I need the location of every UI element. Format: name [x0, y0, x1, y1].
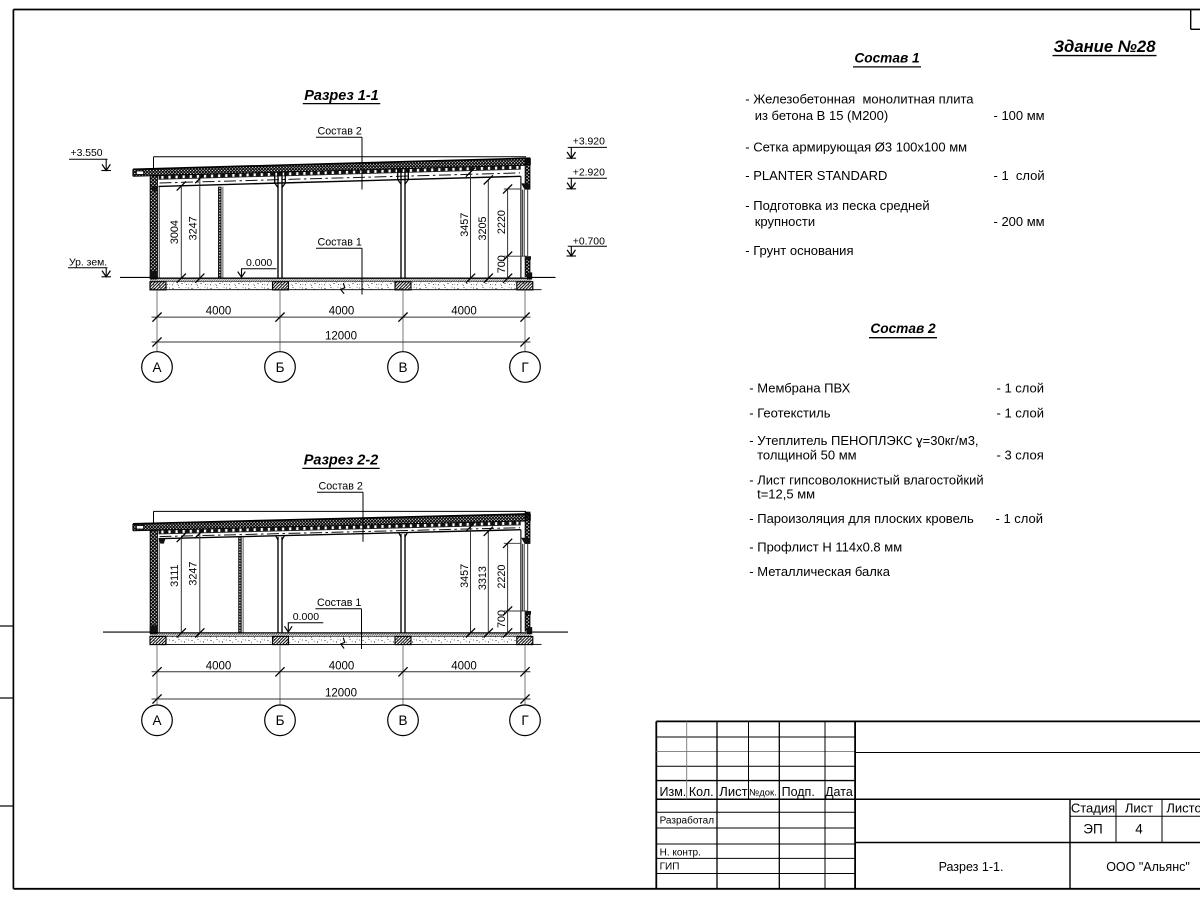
svg-text:2220: 2220	[496, 210, 508, 234]
svg-text:4000: 4000	[329, 660, 355, 672]
svg-text:№док.: №док.	[749, 787, 777, 798]
svg-text:Разработал: Разработал	[660, 815, 715, 827]
svg-text:+3.550: +3.550	[71, 148, 103, 159]
svg-text:Разрез 2-2: Разрез 2-2	[304, 453, 378, 469]
svg-text:- Сетка армирующая Ø3 100х100: - Сетка армирующая Ø3 100х100 мм	[745, 139, 967, 154]
svg-text:3247: 3247	[188, 216, 200, 240]
svg-text:Стадия: Стадия	[1071, 800, 1115, 815]
svg-text:Г: Г	[521, 360, 529, 375]
svg-text:3457: 3457	[459, 564, 471, 588]
svg-text:из бетона В 15 (М200): из бетона В 15 (М200)	[755, 108, 889, 123]
svg-text:12000: 12000	[325, 331, 357, 343]
svg-text:+0.700: +0.700	[573, 236, 605, 247]
svg-text:ЭП: ЭП	[1083, 822, 1102, 837]
svg-text:+2.920: +2.920	[573, 167, 605, 178]
svg-text:Лист: Лист	[1125, 800, 1153, 815]
svg-text:Здание №28: Здание №28	[1054, 37, 1157, 56]
svg-text:Состав 2: Состав 2	[319, 481, 363, 493]
svg-text:Г: Г	[521, 713, 529, 728]
svg-text:Состав 1: Состав 1	[854, 50, 919, 65]
svg-text:Дата: Дата	[825, 785, 853, 799]
svg-text:Изм.: Изм.	[660, 785, 687, 799]
svg-text:- Подготовка из песка средней: - Подготовка из песка средней	[745, 198, 929, 213]
svg-text:Ур. зем.: Ур. зем.	[69, 257, 107, 268]
svg-text:Разрез 1-1.: Разрез 1-1.	[939, 860, 1004, 874]
svg-text:4000: 4000	[451, 306, 477, 318]
svg-text:- Утеплитель ПЕНОПЛЭКС ɣ=30кг/: - Утеплитель ПЕНОПЛЭКС ɣ=30кг/м3,	[749, 433, 978, 448]
svg-text:ООО "Альянс": ООО "Альянс"	[1106, 860, 1190, 874]
svg-text:Лист: Лист	[719, 784, 747, 799]
svg-text:- Мембрана ПВХ: - Мембрана ПВХ	[749, 381, 850, 396]
svg-text:4000: 4000	[206, 660, 232, 672]
svg-text:- Грунт основания: - Грунт основания	[745, 243, 853, 258]
svg-text:4000: 4000	[451, 660, 477, 672]
svg-text:В: В	[398, 360, 407, 375]
svg-text:- 1 слой: - 1 слой	[996, 511, 1044, 526]
svg-text:3247: 3247	[188, 562, 200, 586]
svg-text:- 1 слой: - 1 слой	[997, 381, 1045, 396]
svg-text:Кол.: Кол.	[689, 785, 714, 799]
svg-text:Б: Б	[276, 713, 285, 728]
svg-text:- 1 слой: - 1 слой	[997, 406, 1045, 421]
svg-text:3004: 3004	[169, 220, 181, 244]
svg-text:- 100 мм: - 100 мм	[994, 108, 1045, 123]
svg-text:- Геотекстиль: - Геотекстиль	[749, 406, 830, 421]
svg-text:В: В	[398, 713, 407, 728]
svg-text:Подп.: Подп.	[782, 785, 815, 799]
svg-text:- Металлическая балка: - Металлическая балка	[749, 564, 890, 579]
svg-text:3205: 3205	[477, 216, 489, 240]
svg-text:толщиной 50 мм: толщиной 50 мм	[757, 448, 857, 463]
svg-text:А: А	[152, 360, 161, 375]
svg-text:Н. контр.: Н. контр.	[660, 847, 701, 858]
svg-text:- Железобетонная монолитная п: - Железобетонная монолитная плита	[745, 91, 974, 106]
svg-text:t=12,5 мм: t=12,5 мм	[757, 486, 815, 501]
svg-text:4000: 4000	[206, 306, 232, 318]
svg-text:ГИП: ГИП	[660, 862, 680, 873]
svg-text:Состав 1: Состав 1	[318, 237, 362, 249]
svg-text:3111: 3111	[169, 564, 181, 586]
svg-text:Состав 2: Состав 2	[318, 125, 362, 137]
svg-text:Состав 1: Состав 1	[317, 597, 361, 609]
svg-text:Разрез 1-1: Разрез 1-1	[304, 88, 378, 104]
svg-text:12000: 12000	[325, 688, 357, 700]
svg-text:Б: Б	[276, 360, 285, 375]
svg-text:А: А	[152, 713, 161, 728]
svg-text:+3.920: +3.920	[573, 136, 605, 147]
svg-text:2220: 2220	[496, 565, 508, 589]
svg-text:- 1 слой: - 1 слой	[994, 168, 1045, 183]
svg-text:3457: 3457	[459, 213, 471, 237]
svg-text:Состав 2: Состав 2	[870, 321, 936, 336]
svg-text:- Лист гипсоволокнистый влагос: - Лист гипсоволокнистый влагостойкий	[749, 472, 983, 487]
svg-text:0.000: 0.000	[246, 257, 272, 269]
svg-text:4: 4	[1135, 822, 1143, 837]
svg-text:- PLANTER STANDARD: - PLANTER STANDARD	[745, 168, 887, 183]
svg-text:700: 700	[496, 255, 508, 273]
svg-text:- Пароизоляция для плоских кро: - Пароизоляция для плоских кровель	[749, 511, 974, 526]
svg-text:0.000: 0.000	[293, 611, 319, 623]
svg-text:- Профлист Н 114х0.8 мм: - Профлист Н 114х0.8 мм	[749, 539, 902, 554]
svg-text:крупности: крупности	[755, 214, 815, 229]
svg-text:700: 700	[496, 610, 508, 628]
svg-text:- 3 слоя: - 3 слоя	[997, 448, 1044, 463]
svg-text:4000: 4000	[329, 306, 355, 318]
svg-text:3313: 3313	[477, 566, 489, 590]
svg-text:Листов: Листов	[1166, 800, 1200, 815]
svg-text:- 200 мм: - 200 мм	[994, 214, 1045, 229]
